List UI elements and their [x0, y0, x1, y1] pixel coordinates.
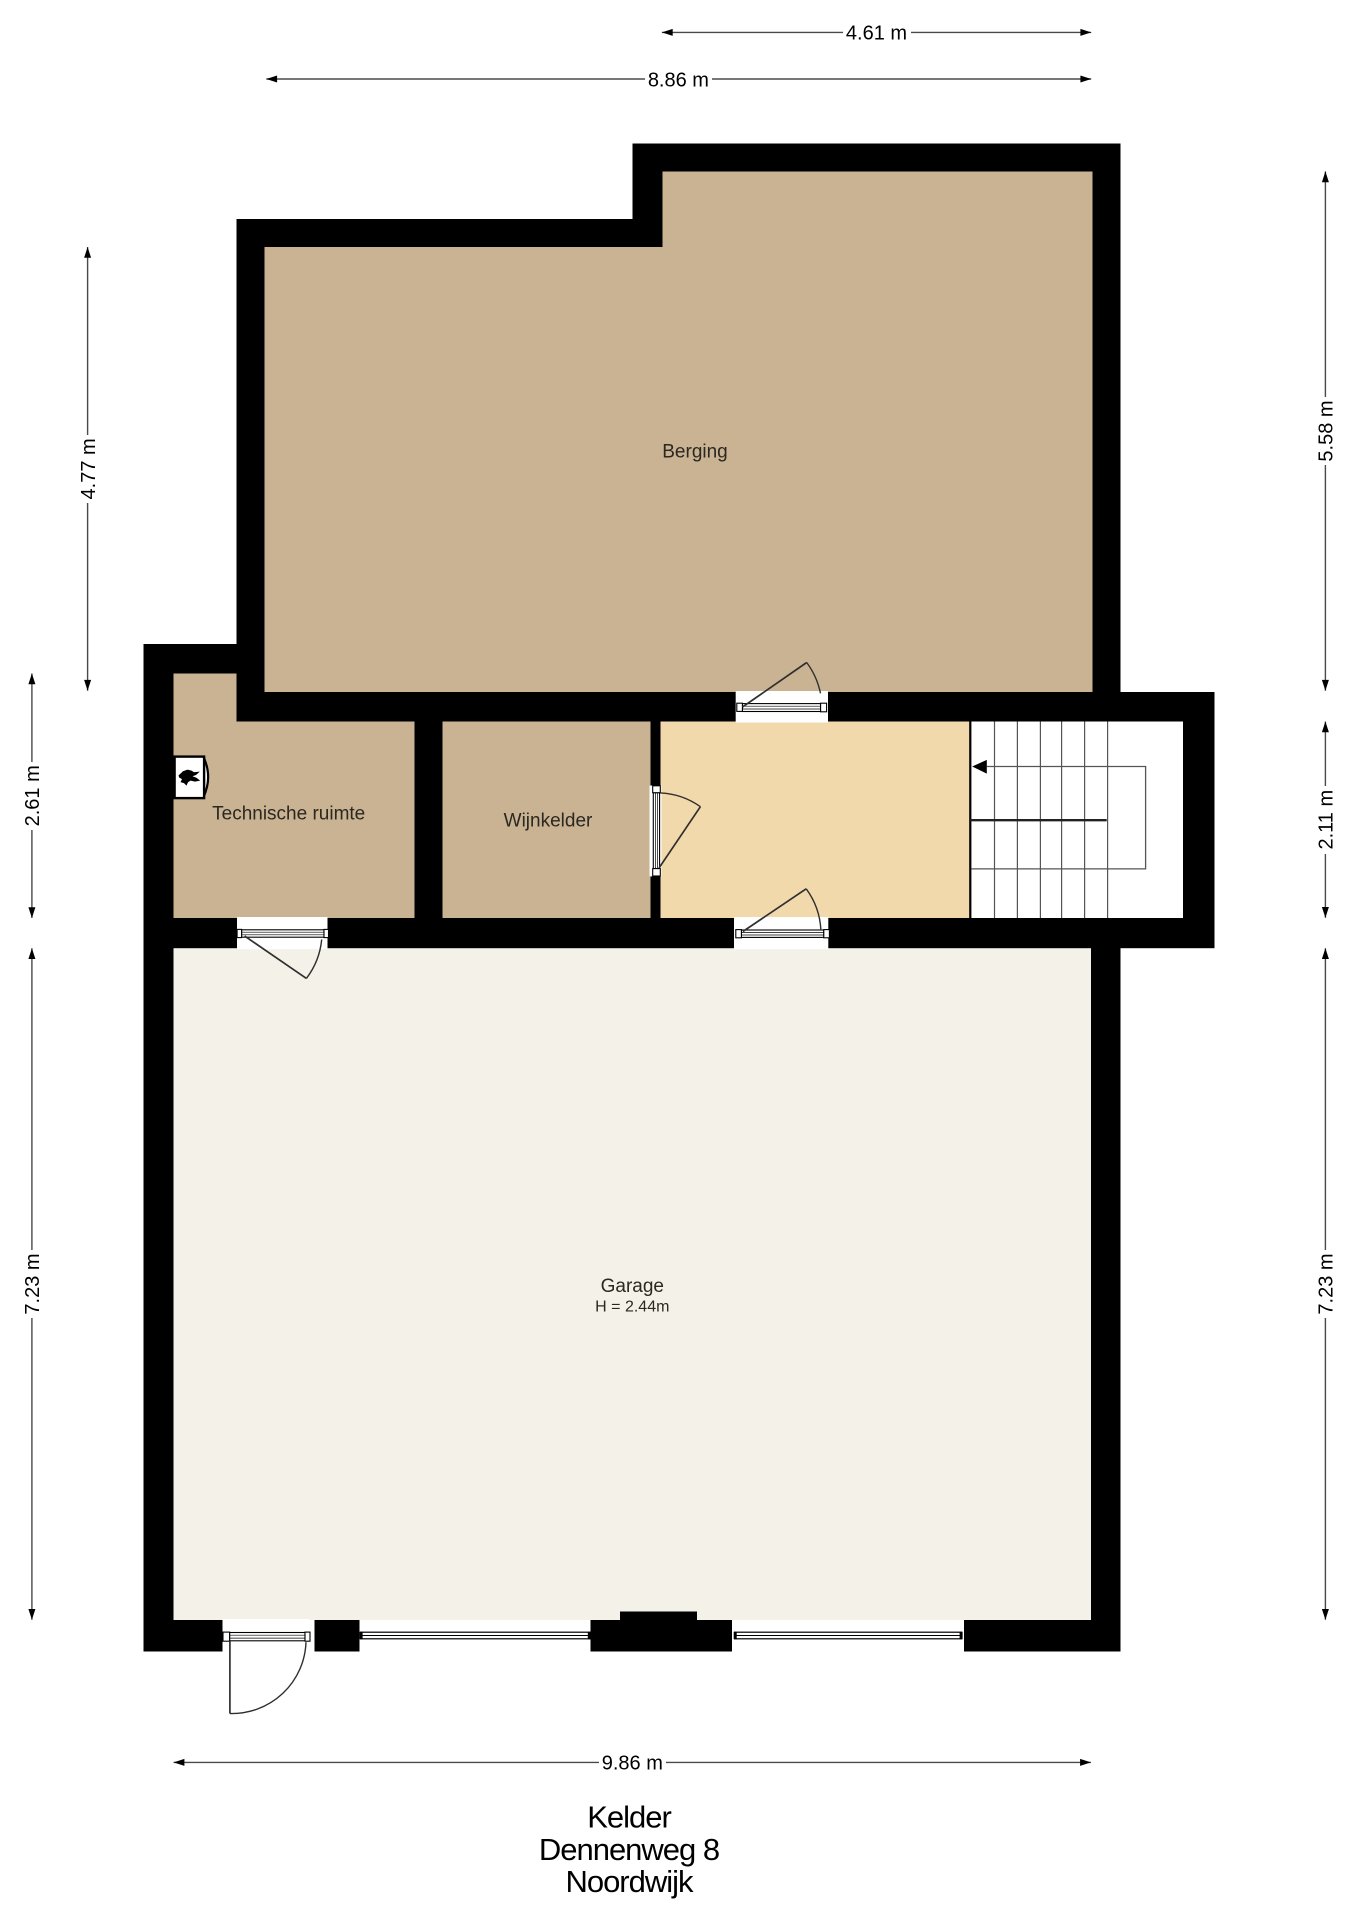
svg-text:7.23 m: 7.23 m	[1316, 1253, 1338, 1314]
svg-text:Wijnkelder: Wijnkelder	[504, 811, 593, 832]
svg-text:2.11 m: 2.11 m	[1316, 790, 1338, 850]
svg-text:8.86 m: 8.86 m	[648, 69, 709, 91]
svg-text:Kelder: Kelder	[587, 1800, 671, 1835]
svg-text:Technische ruimte: Technische ruimte	[212, 804, 365, 825]
svg-text:2.61 m: 2.61 m	[22, 765, 44, 826]
svg-text:4.61 m: 4.61 m	[846, 23, 907, 45]
svg-text:5.58 m: 5.58 m	[1316, 400, 1338, 461]
svg-text:Noordwijk: Noordwijk	[565, 1864, 694, 1899]
svg-text:7.23 m: 7.23 m	[22, 1253, 44, 1314]
svg-text:9.86 m: 9.86 m	[602, 1753, 663, 1775]
svg-text:Garage: Garage	[601, 1276, 664, 1297]
svg-text:Dennenweg 8: Dennenweg 8	[539, 1832, 719, 1867]
svg-text:Berging: Berging	[662, 442, 728, 463]
svg-text:4.77 m: 4.77 m	[78, 438, 100, 499]
svg-text:H = 2.44m: H = 2.44m	[595, 1299, 669, 1316]
